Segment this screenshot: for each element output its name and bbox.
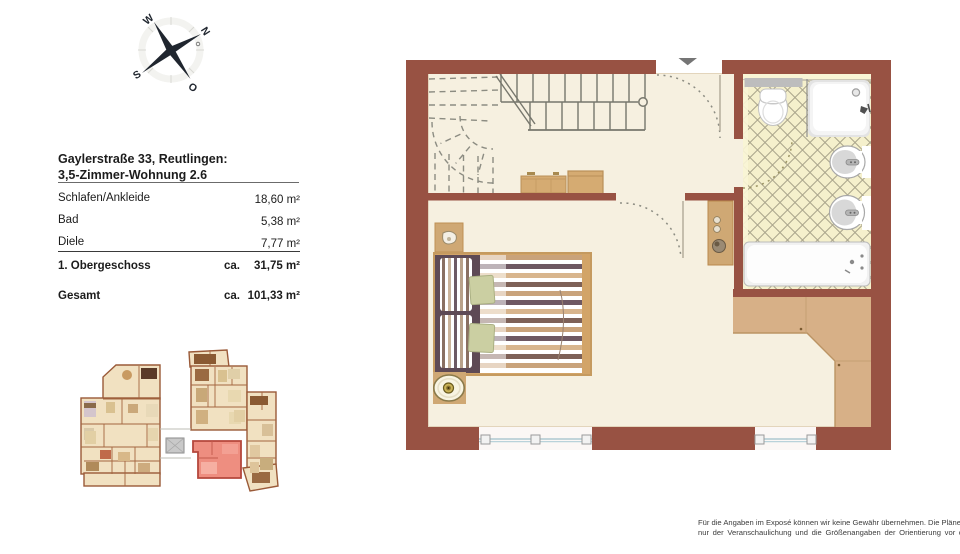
svg-text:O: O: [186, 81, 199, 96]
svg-text:S: S: [131, 68, 143, 82]
